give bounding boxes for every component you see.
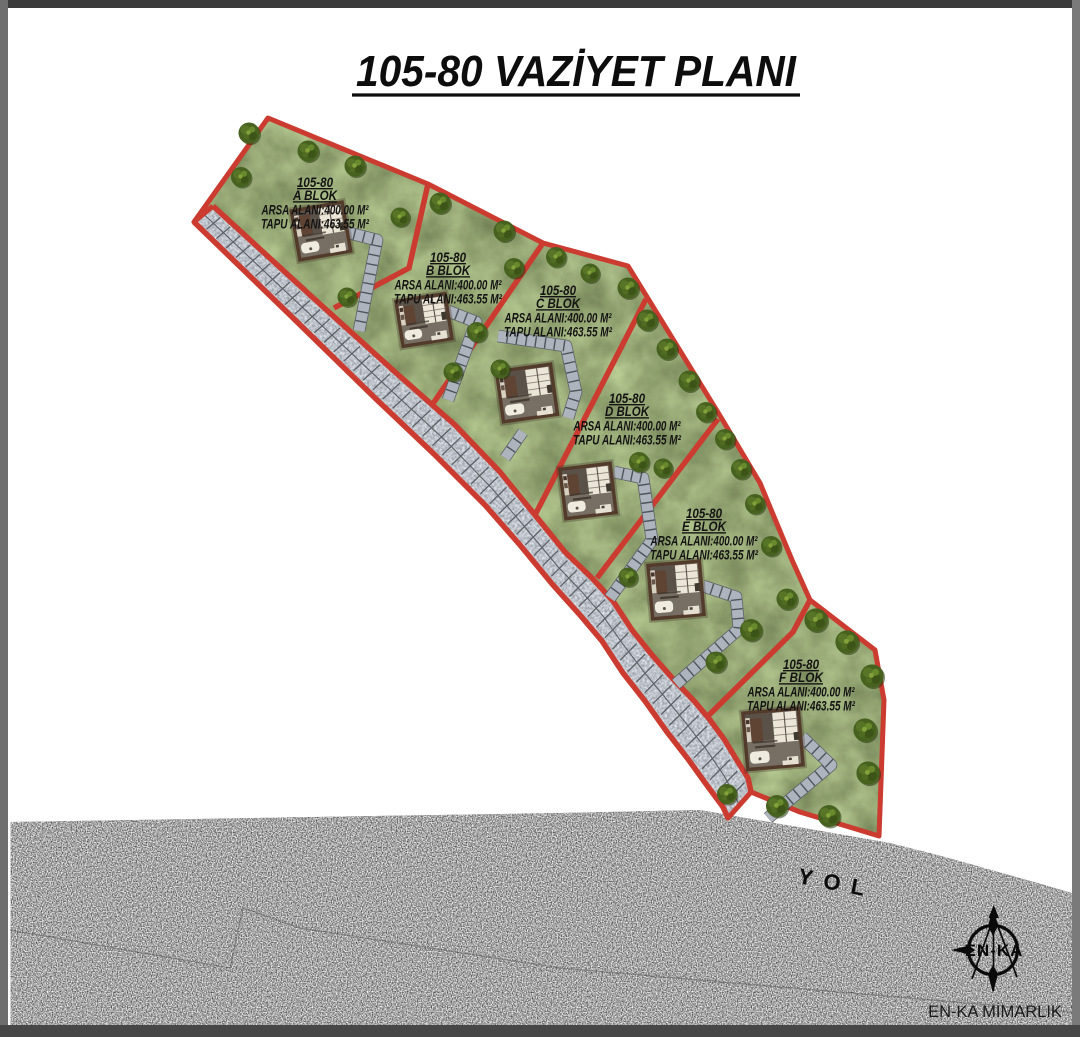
svg-text:A BLOK: A BLOK — [292, 188, 338, 203]
svg-text:ARSA ALANI:400.00 M²: ARSA ALANI:400.00 M² — [650, 533, 758, 548]
svg-text:TAPU ALANI:463.55 M²: TAPU ALANI:463.55 M² — [747, 699, 855, 714]
svg-text:B BLOK: B BLOK — [426, 263, 471, 278]
svg-text:TAPU ALANI:463.55 M²: TAPU ALANI:463.55 M² — [504, 325, 612, 340]
svg-text:ARSA ALANI:400.00 M²: ARSA ALANI:400.00 M² — [747, 684, 855, 699]
svg-text:E BLOK: E BLOK — [682, 519, 727, 534]
svg-text:F BLOK: F BLOK — [779, 670, 824, 685]
svg-text:ARSA ALANI:400.00 M²: ARSA ALANI:400.00 M² — [394, 277, 502, 292]
svg-text:ARSA ALANI:400.00 M²: ARSA ALANI:400.00 M² — [504, 310, 612, 325]
svg-text:ARSA ALANI:400.00 M²: ARSA ALANI:400.00 M² — [573, 418, 681, 433]
svg-text:TAPU ALANI:463.55 M²: TAPU ALANI:463.55 M² — [650, 548, 758, 563]
svg-text:TAPU ALANI:463.55 M²: TAPU ALANI:463.55 M² — [573, 433, 681, 448]
svg-text:C BLOK: C BLOK — [536, 296, 581, 311]
svg-text:EN-KA: EN-KA — [965, 941, 1024, 960]
svg-text:D BLOK: D BLOK — [605, 404, 650, 419]
svg-text:105-80 VAZİYET PLANI: 105-80 VAZİYET PLANI — [356, 47, 797, 96]
svg-text:EN-KA MİMARLIK: EN-KA MİMARLIK — [928, 1002, 1062, 1021]
svg-text:ARSA ALANI:400.00 M²: ARSA ALANI:400.00 M² — [261, 202, 369, 217]
svg-text:TAPU ALANI:463.55 M²: TAPU ALANI:463.55 M² — [394, 292, 502, 307]
svg-text:TAPU ALANI:463.55 M²: TAPU ALANI:463.55 M² — [261, 217, 369, 232]
